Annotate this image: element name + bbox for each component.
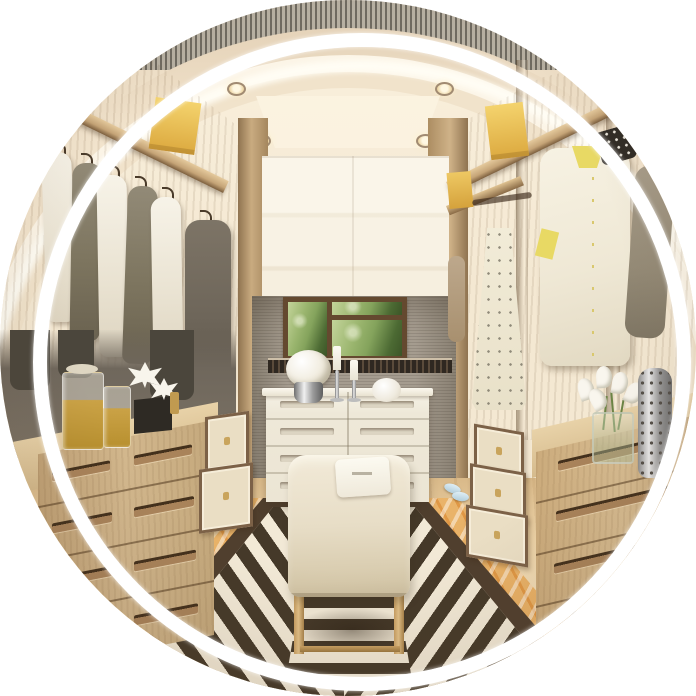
drawer-handle (50, 619, 114, 641)
white-ring-overlay (33, 33, 691, 691)
circular-photo (0, 0, 696, 696)
screenshot (0, 0, 696, 696)
